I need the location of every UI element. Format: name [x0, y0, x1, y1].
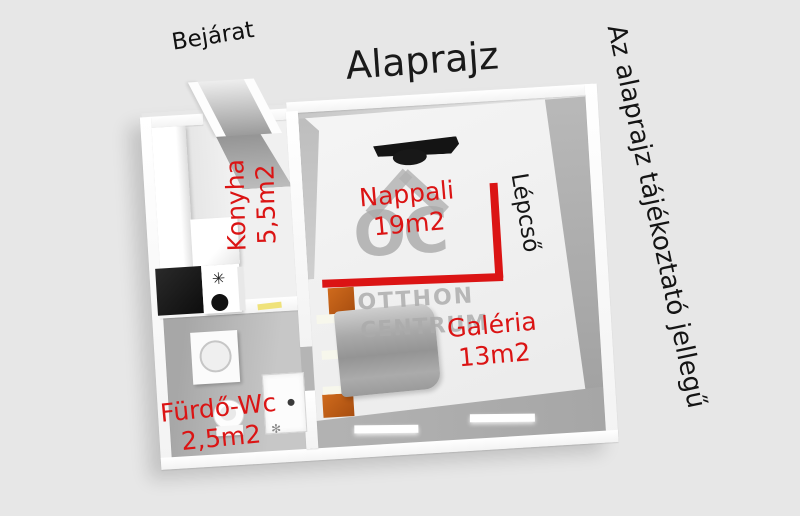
- fridge: [155, 266, 204, 316]
- floorplan: ✳ ✻ OC OTTHON CENTRUM Nappali: [139, 81, 625, 471]
- bed-rail-3: [323, 386, 342, 395]
- bed-post-bottom: [322, 393, 354, 418]
- window-2: [470, 414, 535, 423]
- kitchen-name: Konyha: [220, 153, 252, 258]
- kitchen-area: 5,5m2: [250, 152, 282, 257]
- gallery-label: Galéria 13m2: [431, 305, 556, 374]
- burner-icon: ✳: [211, 269, 226, 289]
- entrance-label: Bejárat: [170, 17, 256, 56]
- window-1: [354, 425, 418, 434]
- kitchen-label: Konyha 5,5m2: [220, 152, 287, 258]
- living-room-label: Nappali 19m2: [346, 174, 471, 243]
- floorplan-image: ✳ ✻ OC OTTHON CENTRUM Nappali: [0, 0, 800, 516]
- page-title: Alaprajz: [344, 33, 500, 88]
